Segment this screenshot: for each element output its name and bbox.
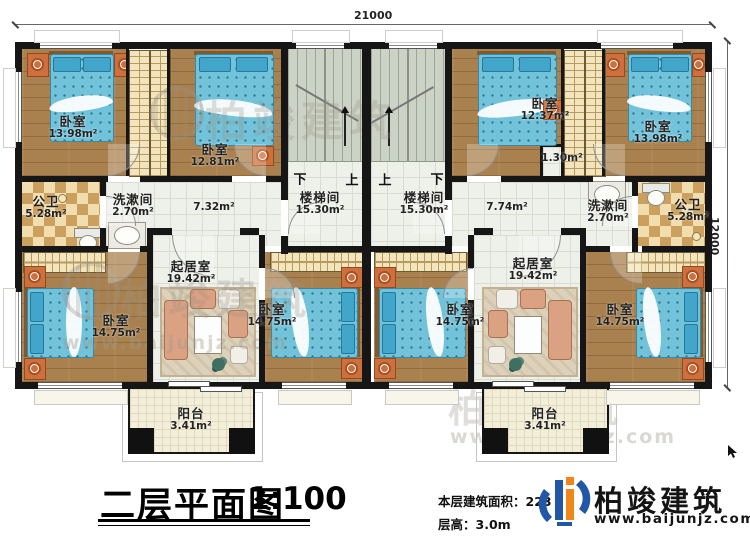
- scale-label: 1:100: [248, 481, 347, 517]
- mouse-cursor: [728, 444, 738, 458]
- room-label: 卧室14.75m²: [92, 314, 141, 340]
- room-label: 阳台3.41m²: [170, 407, 211, 433]
- floor-drain: [692, 232, 701, 241]
- floor-plan-page: 21000 12000: [0, 0, 750, 540]
- stair-mark: 上: [345, 170, 358, 189]
- room-label: 洗漱间2.70m²: [112, 193, 153, 219]
- room-label: 洗漱间2.70m²: [587, 199, 628, 225]
- room-label: 楼梯间15.30m²: [296, 191, 345, 217]
- stair-mark: 下: [430, 169, 443, 188]
- room-label: 起居室19.42m²: [509, 257, 558, 283]
- floor-height-note: 层高：3.0m: [438, 514, 511, 533]
- room-label: 楼梯间15.30m²: [400, 191, 449, 217]
- room-label: 卧室12.81m²: [191, 143, 240, 169]
- room-label: 7.74m²: [486, 202, 527, 214]
- room-label: 卧室14.75m²: [436, 303, 485, 329]
- dimension-top-label: 21000: [352, 9, 394, 22]
- room-label: 公卫5.28m²: [667, 198, 708, 224]
- room-label: 卧室14.75m²: [596, 303, 645, 329]
- room-label: 7.32m²: [193, 202, 234, 214]
- room-label: 阳台3.41m²: [524, 407, 565, 433]
- stair-mark: 上: [378, 170, 391, 189]
- room-label: 起居室19.42m²: [167, 260, 216, 286]
- stair-mark: 下: [293, 169, 306, 188]
- logo-icon: [537, 472, 591, 532]
- logo-url: www.baijunjz.com: [594, 511, 750, 527]
- room-label: 卧室14.75m²: [248, 303, 297, 329]
- watermark-logo-icon: [150, 86, 204, 140]
- room-label: 卧室13.98m²: [634, 120, 683, 146]
- room-label: 卧室13.98m²: [49, 115, 98, 141]
- room-label: 1.30m²: [541, 153, 582, 165]
- area-note: 本层建筑面积：223: [438, 491, 552, 510]
- room-label: 公卫5.28m²: [25, 195, 66, 221]
- room-label: 卧室12.37m²: [521, 97, 570, 123]
